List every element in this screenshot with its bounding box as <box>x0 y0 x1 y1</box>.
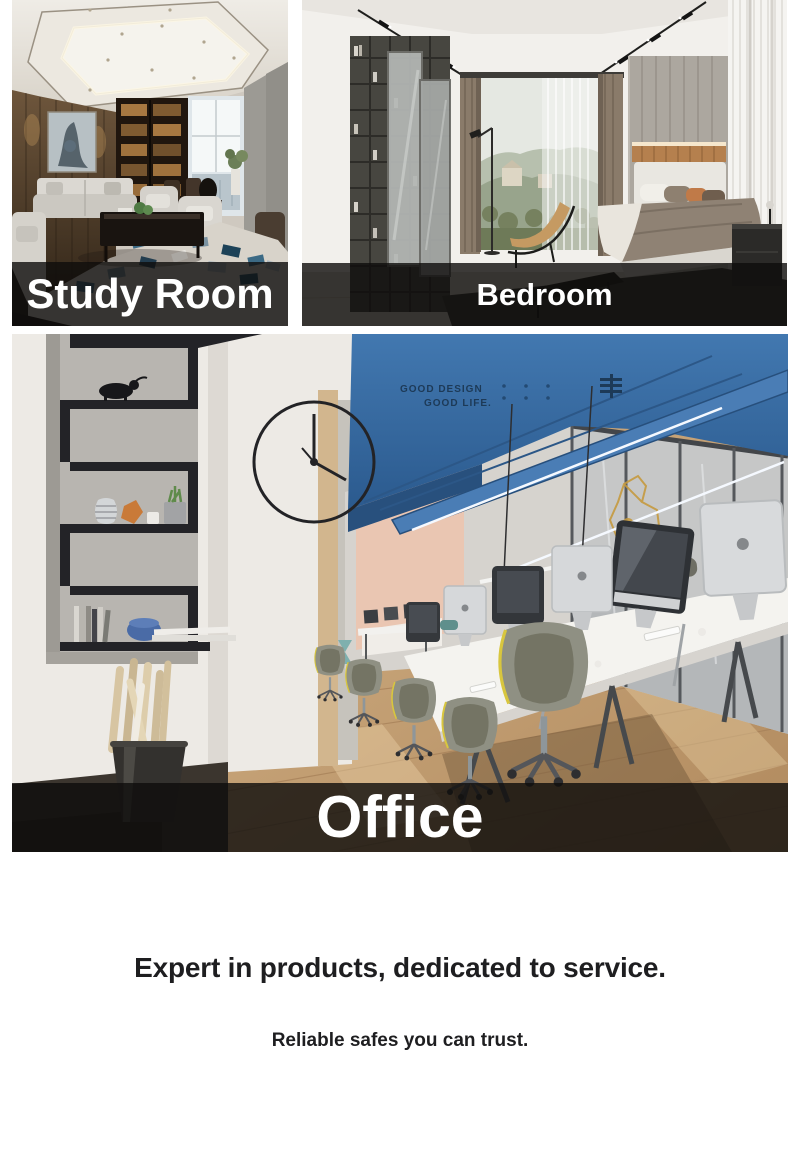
product-gallery-page: Study Room <box>0 0 800 1159</box>
office-ceiling-text-line1: GOOD DESIGN <box>400 384 483 395</box>
tagline-subheading: Reliable safes you can trust. <box>0 1030 800 1052</box>
bedroom-label: Bedroom <box>476 279 612 310</box>
study-room-label: Study Room <box>26 273 273 315</box>
office-label: Office <box>316 788 483 847</box>
bedroom-caption: Bedroom <box>302 263 787 326</box>
office-photo: GOOD DESIGN GOOD LIFE. <box>12 334 788 852</box>
study-room-card: Study Room <box>12 0 288 326</box>
office-card: GOOD DESIGN GOOD LIFE. <box>12 334 788 852</box>
office-ceiling-text-line2: GOOD LIFE. <box>424 398 492 409</box>
study-room-caption: Study Room <box>12 262 288 326</box>
office-caption: Office <box>12 783 788 852</box>
bedroom-card: Bedroom <box>302 0 787 326</box>
tagline-heading: Expert in products, dedicated to service… <box>0 952 800 984</box>
